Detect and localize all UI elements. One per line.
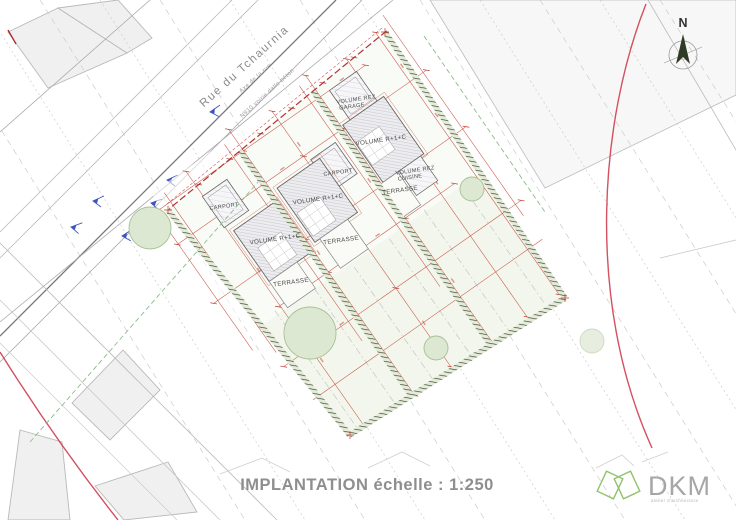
tree — [129, 207, 171, 249]
tree — [460, 177, 484, 201]
tree — [424, 336, 448, 360]
site-plan-svg: Rue du Tchaurnia Axe de la rue N910 voir… — [0, 0, 736, 520]
dkm-logo-text: DKM — [648, 471, 711, 501]
north-label: N — [678, 16, 687, 30]
dkm-logo-subtitle: atelier d'architecture — [651, 498, 699, 503]
drawing-sheet: Rue du Tchaurnia Axe de la rue N910 voir… — [0, 0, 736, 520]
tree — [580, 329, 604, 353]
sheet-title: IMPLANTATION échelle : 1:250 — [240, 476, 494, 494]
tree — [284, 307, 336, 359]
